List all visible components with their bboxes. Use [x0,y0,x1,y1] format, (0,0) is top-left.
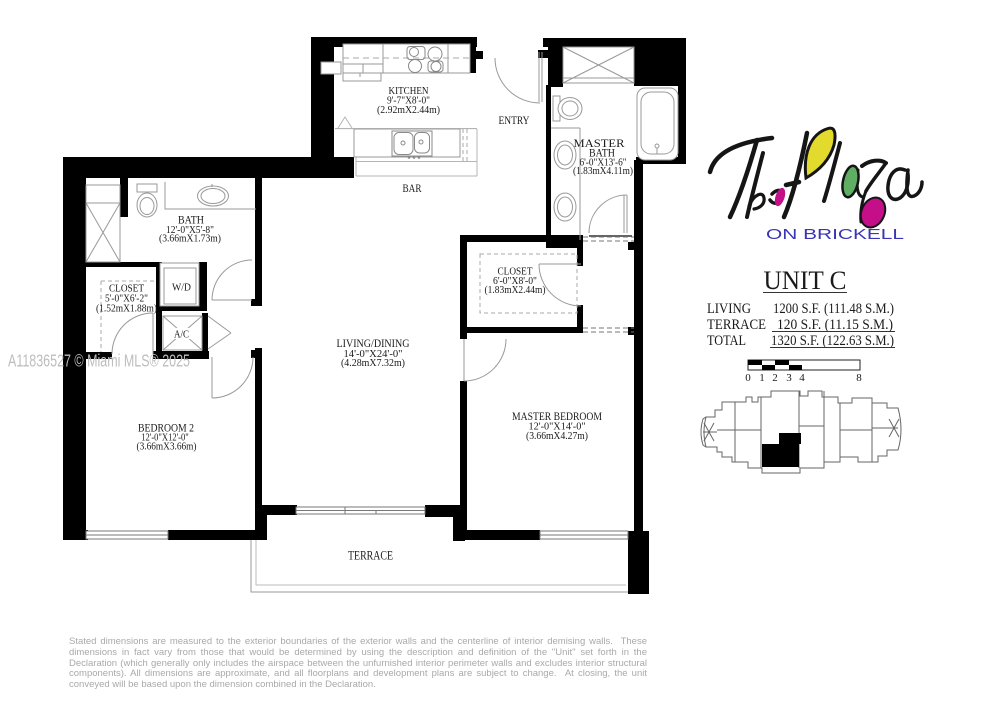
svg-text:(1.52mX1.88m): (1.52mX1.88m) [96,304,157,315]
svg-text:A11836527 © Miami MLS® 2025: A11836527 © Miami MLS® 2025 [8,351,190,371]
svg-text:LIVING: LIVING [707,301,751,317]
svg-text:UNIT C: UNIT C [764,266,847,295]
svg-text:(3.66mX4.27m): (3.66mX4.27m) [526,431,588,442]
svg-text:(1.83mX4.11m): (1.83mX4.11m) [573,166,633,177]
svg-text:4: 4 [799,372,805,384]
svg-text:1: 1 [759,372,765,384]
svg-text:(1.83mX2.44m): (1.83mX2.44m) [485,285,546,296]
svg-text:1320 S.F. (122.63 S.M.): 1320 S.F. (122.63 S.M.) [771,333,894,349]
svg-text:1200 S.F. (111.48 S.M.): 1200 S.F. (111.48 S.M.) [773,301,894,317]
svg-text:(4.28mX7.32m): (4.28mX7.32m) [341,358,405,369]
svg-text:3: 3 [786,372,792,384]
svg-text:ENTRY: ENTRY [499,113,530,127]
svg-text:ON BRICKELL: ON BRICKELL [766,226,904,243]
svg-text:2: 2 [772,372,778,384]
svg-text:0: 0 [745,372,751,384]
svg-text:8: 8 [856,372,862,384]
svg-text:TOTAL: TOTAL [707,333,746,349]
svg-text:120 S.F. (11.15 S.M.): 120 S.F. (11.15 S.M.) [777,317,893,333]
svg-text:TERRACE: TERRACE [707,317,766,333]
svg-text:TERRACE: TERRACE [348,548,393,562]
svg-text:BAR: BAR [403,181,422,195]
svg-text:A/C: A/C [174,329,189,341]
svg-text:(2.92mX2.44m): (2.92mX2.44m) [377,105,440,116]
svg-text:W/D: W/D [172,282,191,294]
svg-text:(3.66mX1.73m): (3.66mX1.73m) [159,234,221,245]
svg-text:(3.66mX3.66m): (3.66mX3.66m) [137,441,197,452]
